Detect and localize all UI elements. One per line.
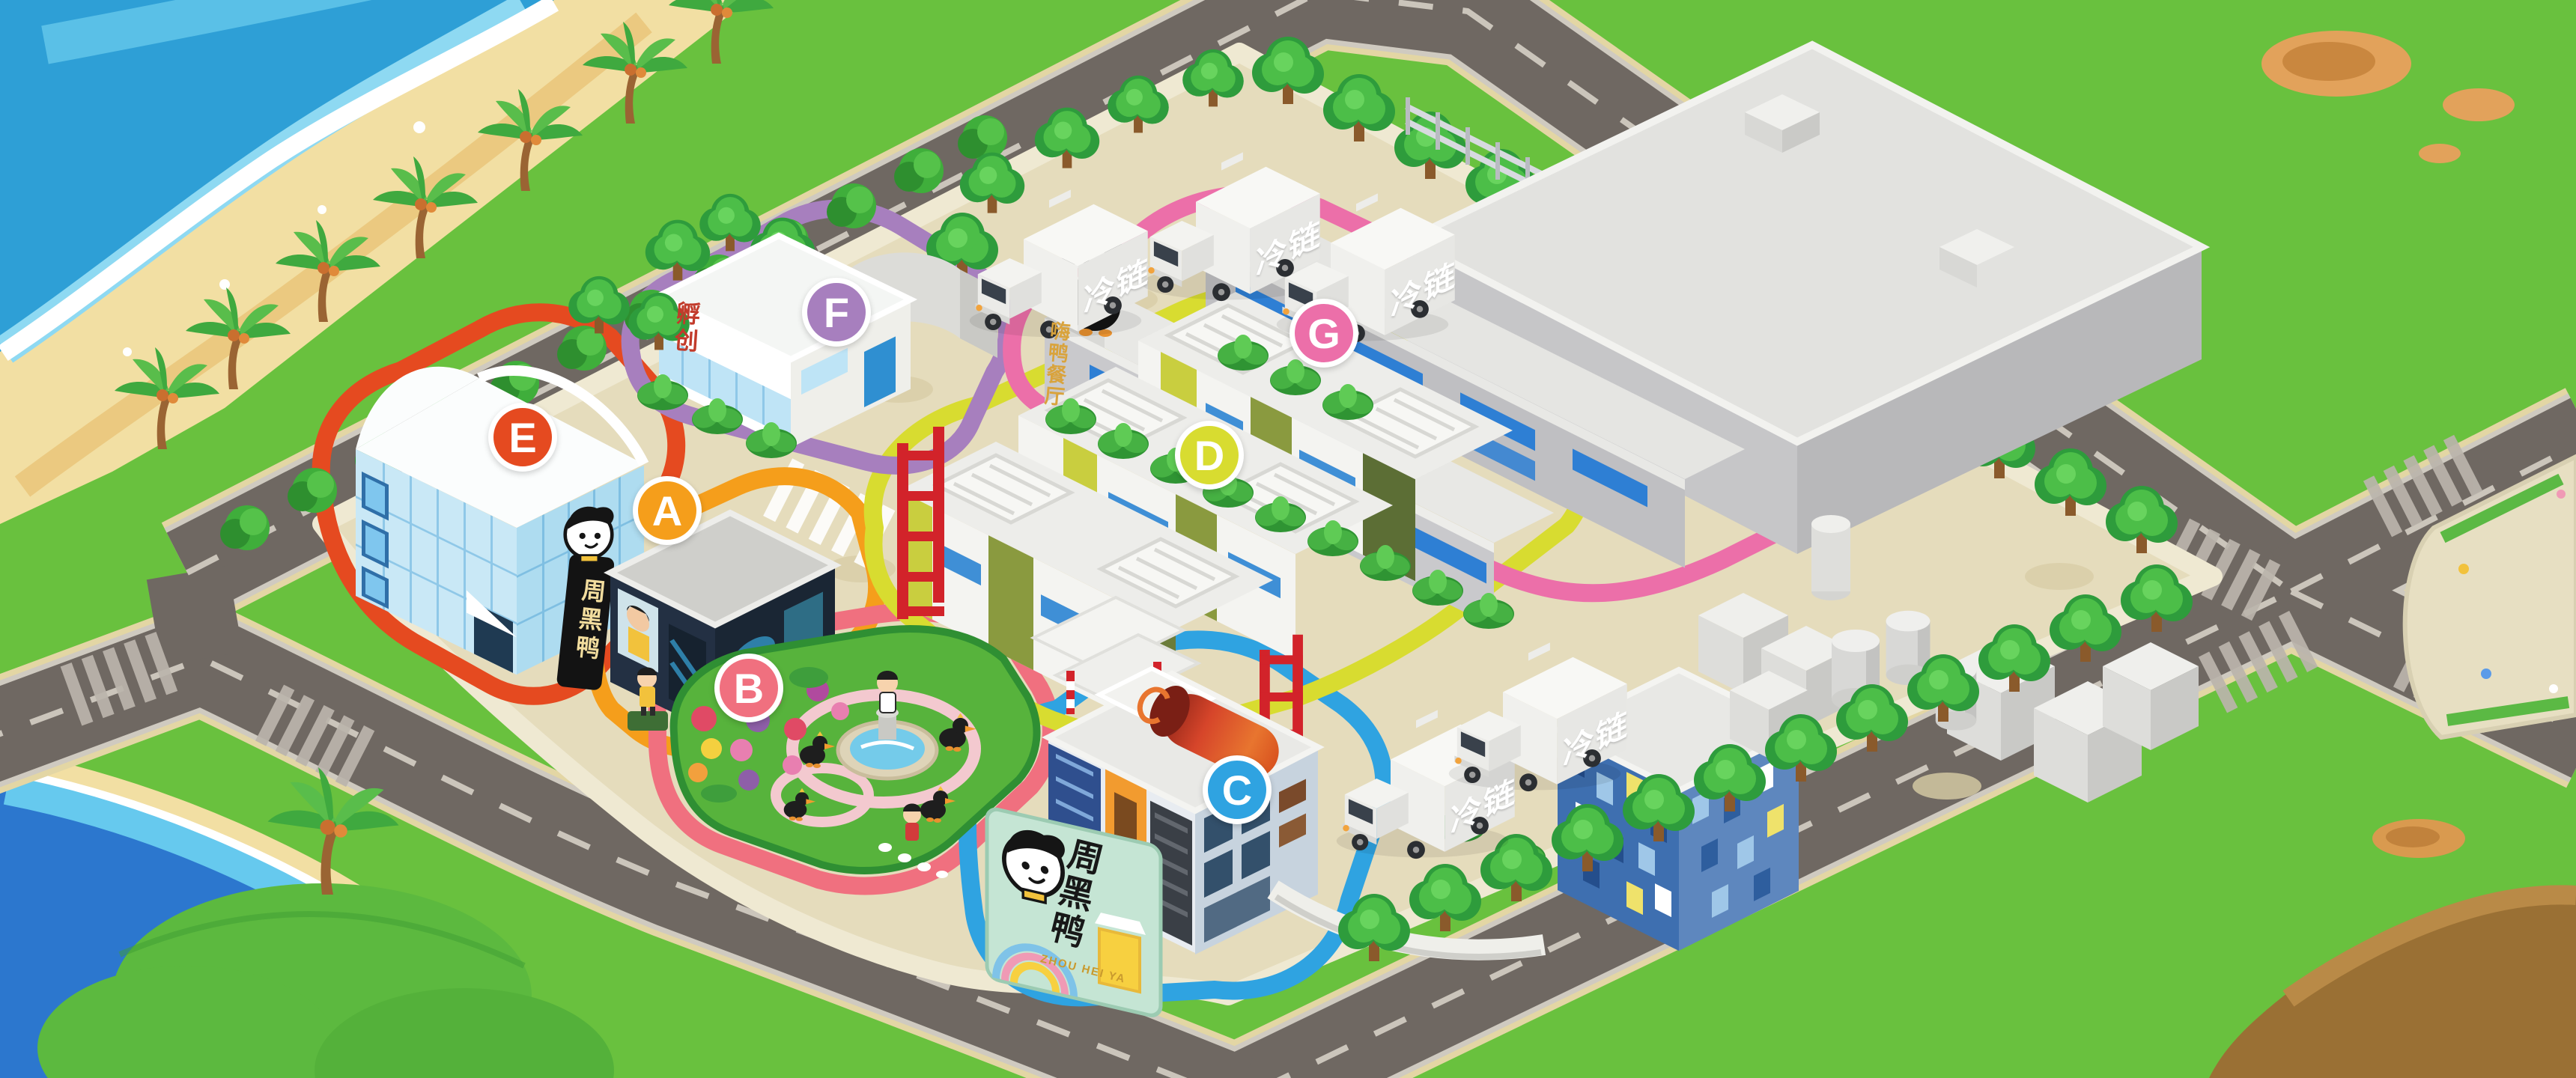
zone-badge-a[interactable]: A bbox=[633, 476, 702, 545]
zone-badge-b[interactable]: B bbox=[714, 654, 783, 722]
zone-badge-g[interactable]: G bbox=[1289, 299, 1358, 368]
zone-badge-e[interactable]: E bbox=[488, 403, 557, 472]
sign-f-building-text: 孵创 bbox=[666, 300, 705, 374]
zone-badge-f[interactable]: F bbox=[802, 278, 871, 347]
factory-campus-map: A B C D E F G 冷链 冷链 冷链 冷链 冷链 周黑鸭 孵创 嗨鸭餐厅… bbox=[0, 0, 2576, 1078]
campus-illustration bbox=[0, 0, 2576, 1078]
zone-badge-c[interactable]: C bbox=[1203, 755, 1272, 824]
zone-badge-d[interactable]: D bbox=[1175, 421, 1244, 490]
